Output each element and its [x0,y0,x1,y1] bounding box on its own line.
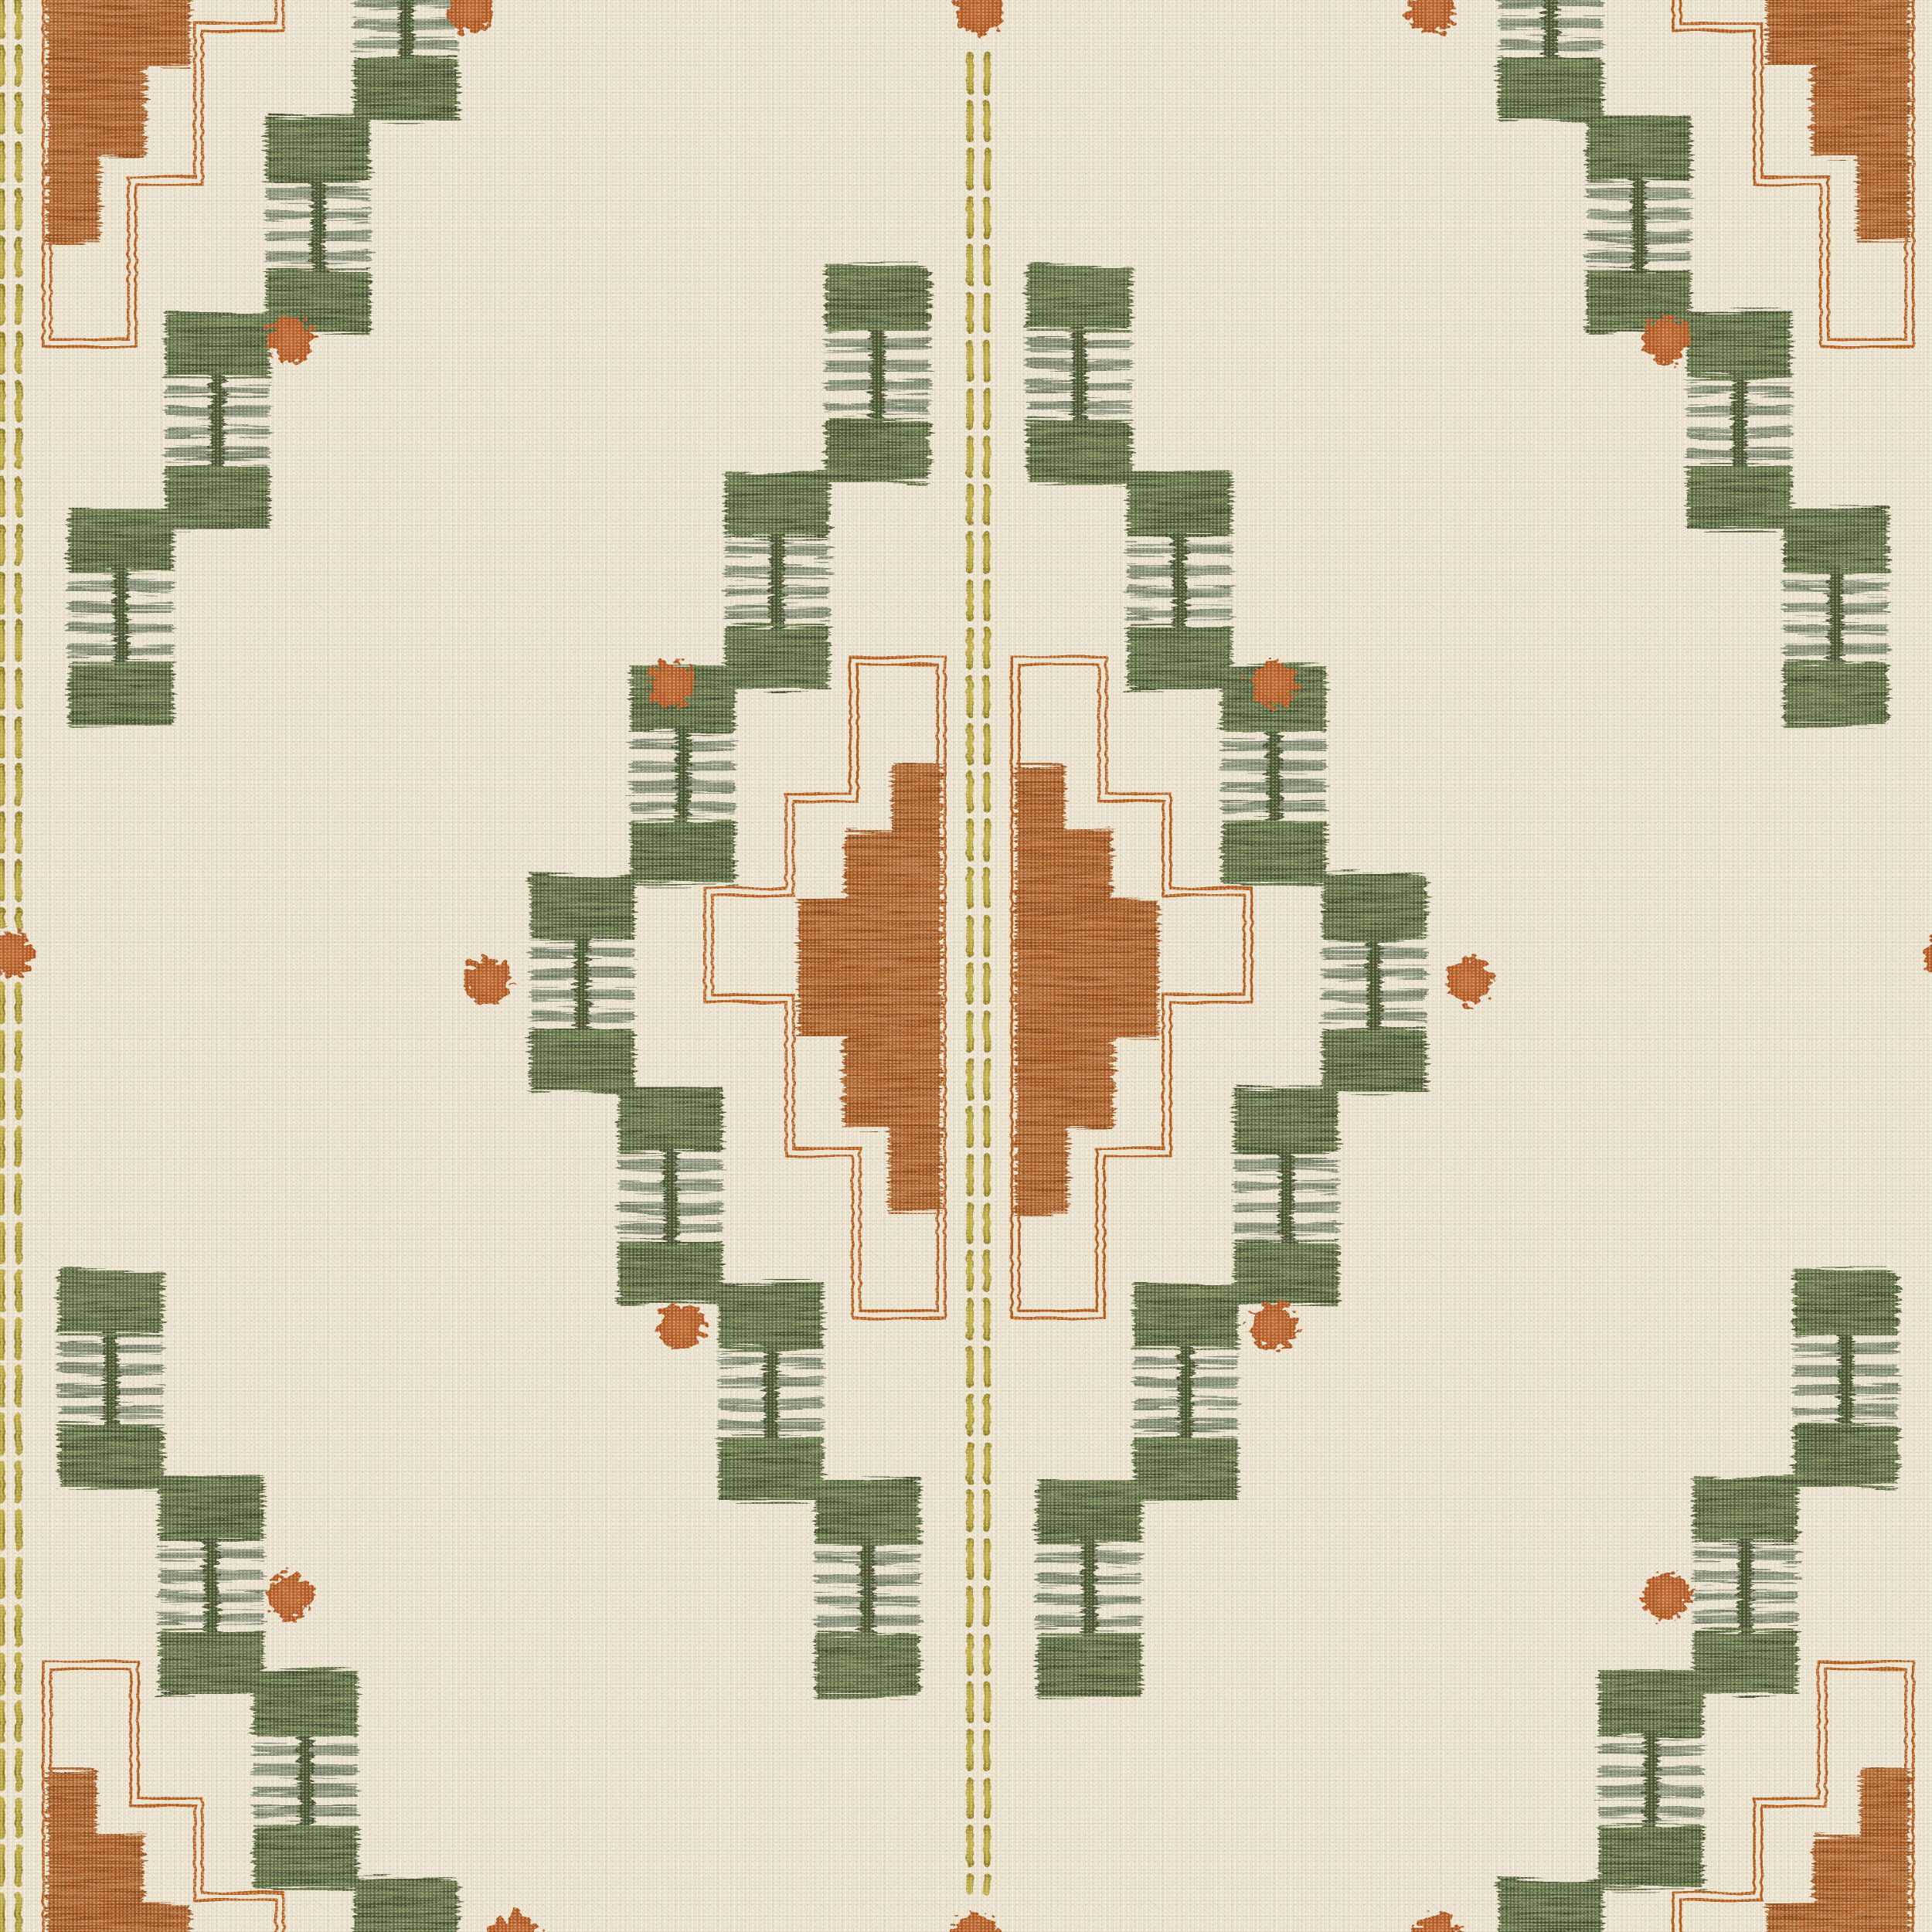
block-station [354,1879,458,1932]
rust-stepped-diamond-half [47,0,190,242]
block-station [1599,1671,1703,1889]
block-station [1128,471,1232,689]
block-station [1693,1476,1798,1694]
rust-dot [464,957,511,1004]
rust-dot [1250,662,1297,708]
block-station [618,1087,723,1304]
block-station [253,1671,358,1889]
block-station [1498,1879,1603,1932]
rust-dot [1923,931,1932,978]
rust-dot [1414,1913,1461,1932]
rust-dot [953,1913,999,1932]
rust-dot [1644,1573,1690,1620]
top-left-medallion [0,0,458,726]
rust-dot [267,1573,313,1620]
block-station [266,115,370,333]
block-station [1037,1479,1141,1697]
rust-stepped-diamond-half [1015,764,1158,1213]
bottom-left-medallion [0,1270,458,1932]
rust-dot [956,0,1002,33]
fabric-pattern-swatch [0,0,1932,1932]
block-station [354,0,458,121]
center-medallion [530,265,1427,1697]
block-station [1687,311,1791,529]
block-station [725,471,829,689]
rust-dot [1250,1303,1297,1349]
rust-dot [1446,957,1492,1004]
block-station [1784,508,1888,726]
block-station [1587,115,1691,333]
rust-dot [1644,317,1690,363]
rust-dot [491,1913,537,1932]
rust-dot [0,931,33,978]
rust-dot [658,1303,704,1349]
block-station [69,508,173,726]
block-station [59,1270,163,1488]
rust-stepped-diamond-half [1767,1769,1910,1932]
rust-dot [648,662,694,708]
block-station [1498,0,1603,121]
rust-stepped-diamond-half [47,1769,190,1932]
block-station [1134,1283,1238,1501]
block-station [1027,265,1131,483]
block-station [825,265,930,483]
rust-stepped-diamond-half [798,764,941,1213]
block-station [1322,874,1427,1092]
rust-stepped-diamond-half [1767,0,1910,242]
rust-dot [267,317,313,363]
block-station [1794,1270,1898,1488]
rust-dot [1408,0,1454,33]
block-station [530,874,634,1092]
bottom-right-medallion [1498,1270,1932,1932]
block-station [165,311,270,529]
block-station [1234,1087,1338,1304]
chain-stitch-line [970,56,987,1892]
block-station [159,1476,264,1694]
block-station [815,1479,920,1697]
top-right-medallion [1498,0,1932,726]
embroidery-pattern-layer [0,0,1932,1932]
block-station [719,1283,823,1501]
